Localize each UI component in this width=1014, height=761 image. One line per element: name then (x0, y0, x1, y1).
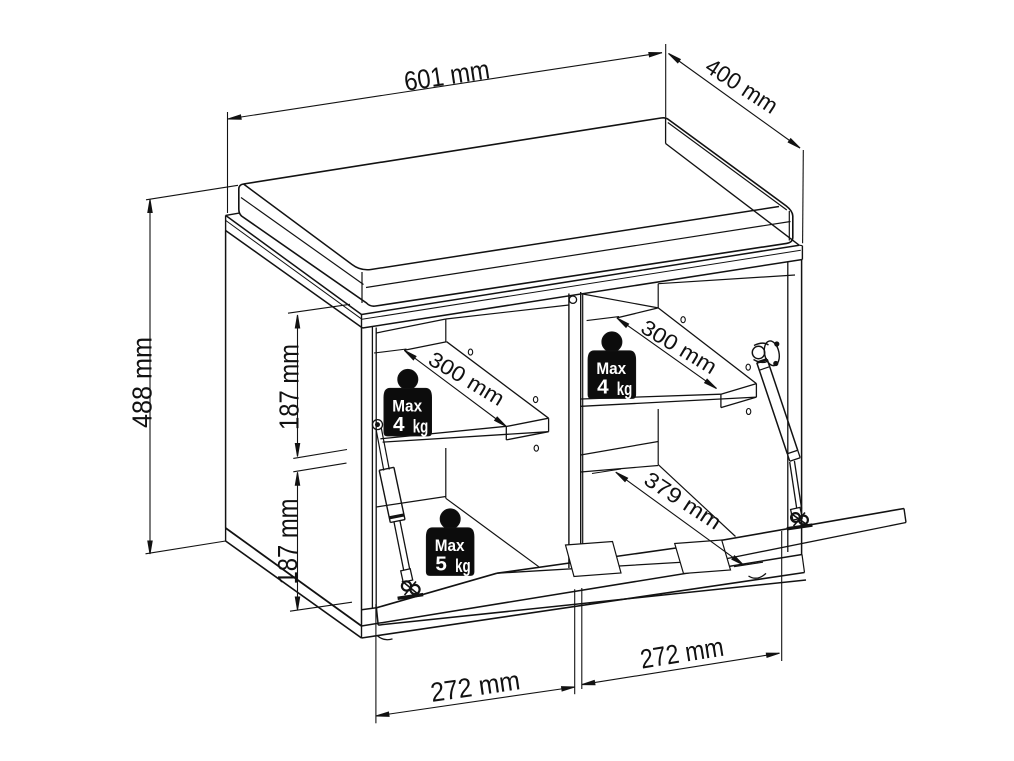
svg-text:5: 5 (435, 553, 447, 576)
svg-text:kg: kg (413, 416, 429, 436)
svg-text:4: 4 (597, 376, 609, 399)
svg-text:kg: kg (617, 379, 633, 399)
svg-text:488 mm: 488 mm (127, 337, 158, 428)
svg-text:kg: kg (455, 556, 471, 576)
svg-text:187 mm: 187 mm (273, 344, 304, 430)
svg-text:187 mm: 187 mm (272, 499, 303, 585)
svg-text:4: 4 (393, 413, 405, 436)
